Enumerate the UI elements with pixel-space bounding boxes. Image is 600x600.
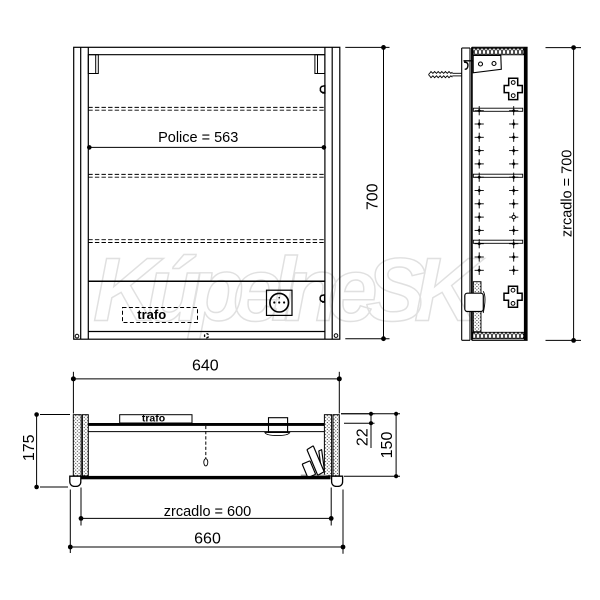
- svg-text:trafo: trafo: [137, 307, 166, 322]
- svg-text:zrcadlo = 600: zrcadlo = 600: [164, 504, 251, 520]
- svg-text:660: 660: [194, 531, 221, 548]
- svg-text:150: 150: [379, 432, 396, 459]
- svg-text:700: 700: [365, 183, 382, 210]
- svg-text:zrcadlo = 700: zrcadlo = 700: [559, 150, 575, 237]
- svg-text:175: 175: [21, 434, 38, 461]
- svg-text:22: 22: [354, 428, 371, 446]
- svg-text:trafo: trafo: [142, 413, 165, 425]
- svg-text:Police = 563: Police = 563: [158, 130, 238, 146]
- svg-text:640: 640: [192, 357, 219, 374]
